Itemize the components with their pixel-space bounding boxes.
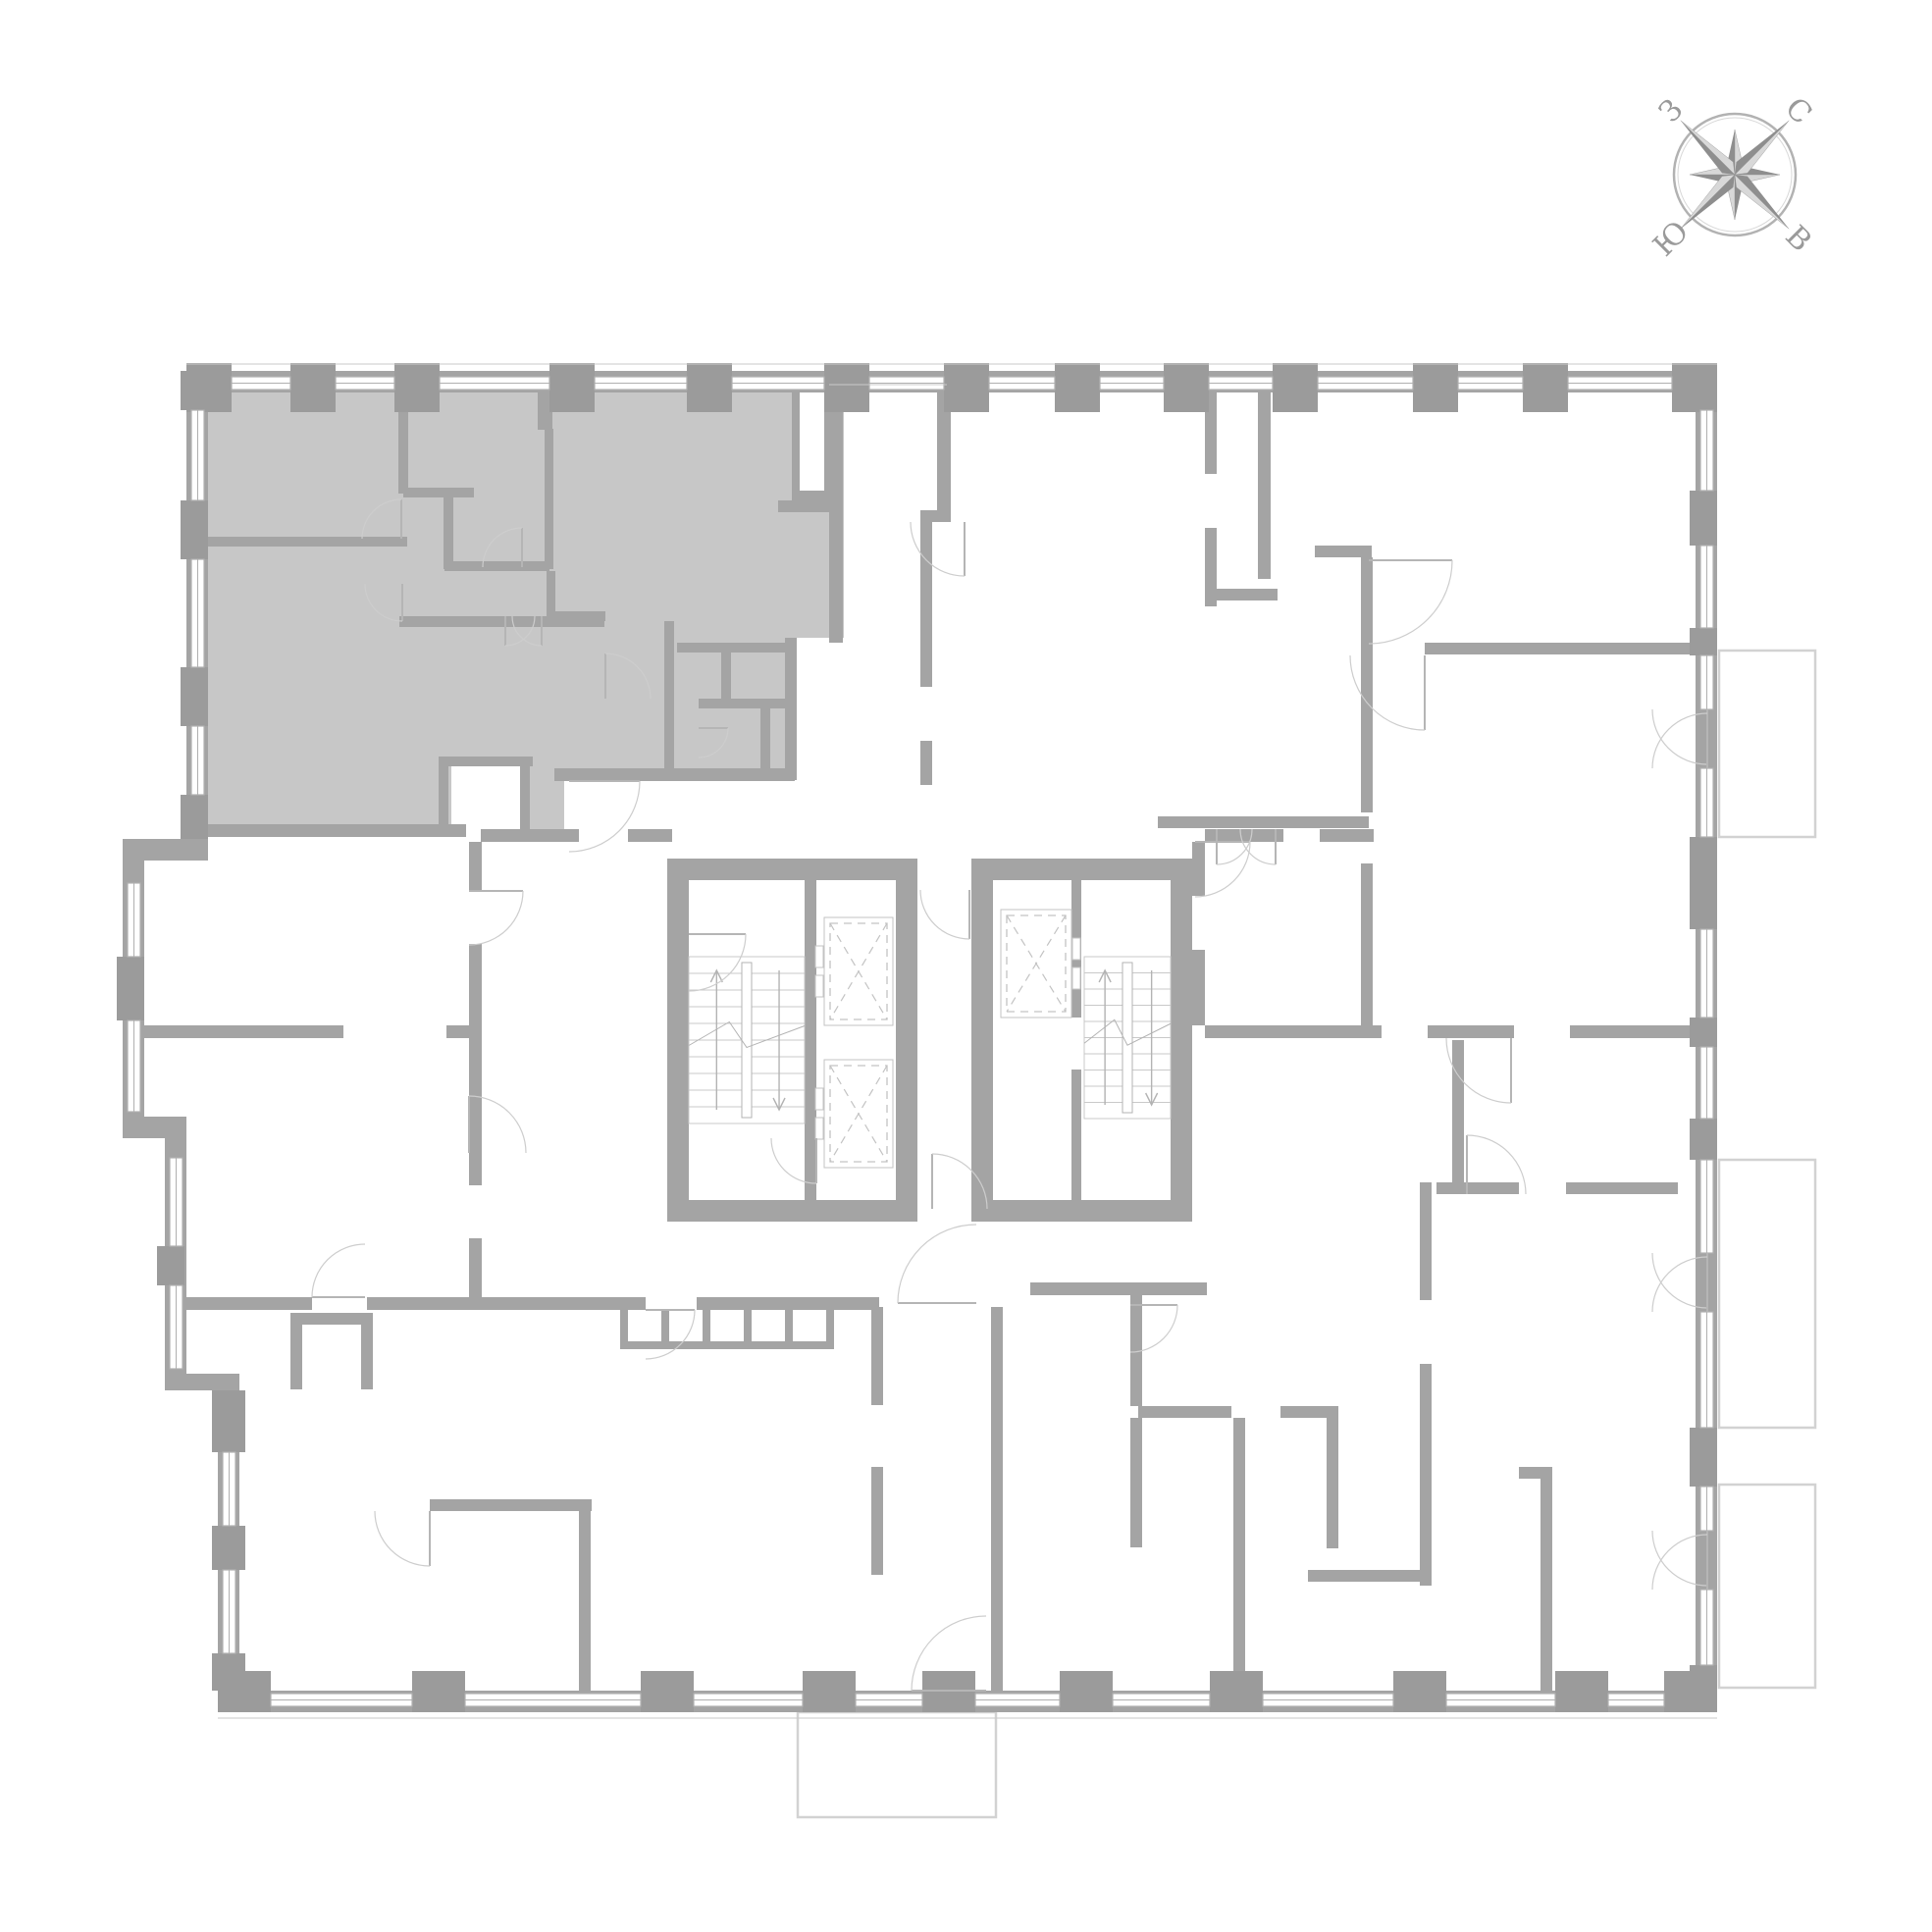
- compass-rose: С В Ю З: [1646, 91, 1818, 264]
- stairs-layer: [689, 957, 1171, 1123]
- floor-plan-page: С В Ю З: [0, 0, 1932, 1932]
- compass-star: [1674, 114, 1796, 235]
- floor-plan-svg: С В Ю З: [0, 0, 1932, 1932]
- elevators-layer: [815, 910, 1080, 1168]
